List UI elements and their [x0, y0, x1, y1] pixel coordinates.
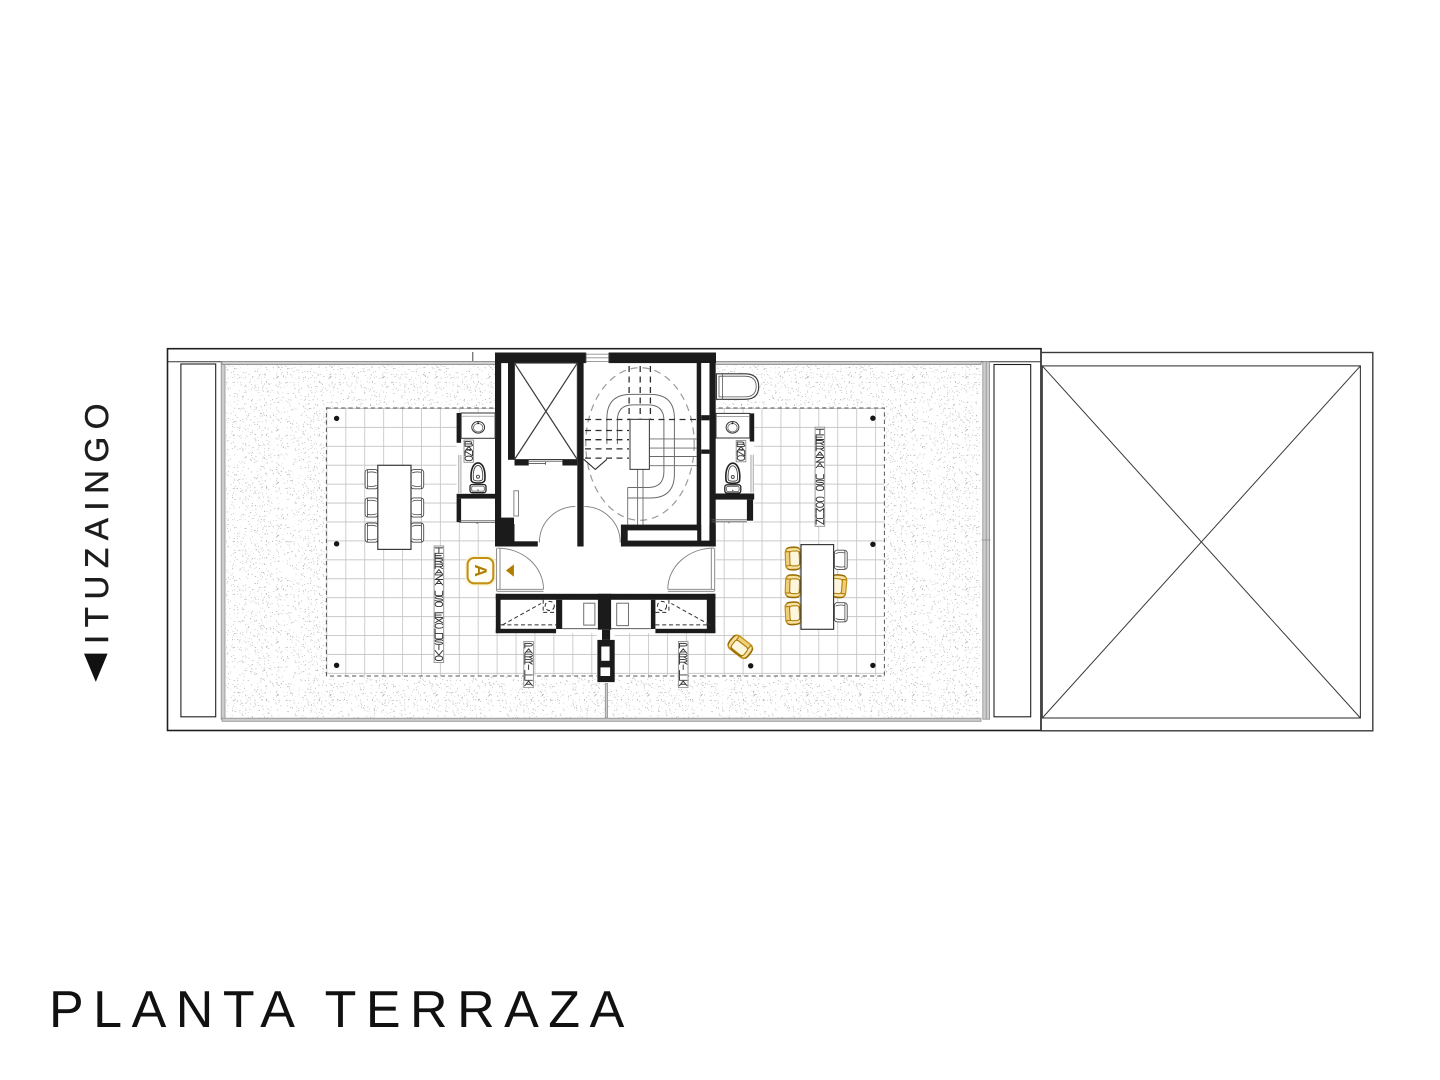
svg-text:ITUZAINGO: ITUZAINGO: [78, 396, 115, 644]
svg-text:A: A: [471, 564, 490, 576]
svg-text:PLANTA TERRAZA: PLANTA TERRAZA: [49, 981, 634, 1039]
